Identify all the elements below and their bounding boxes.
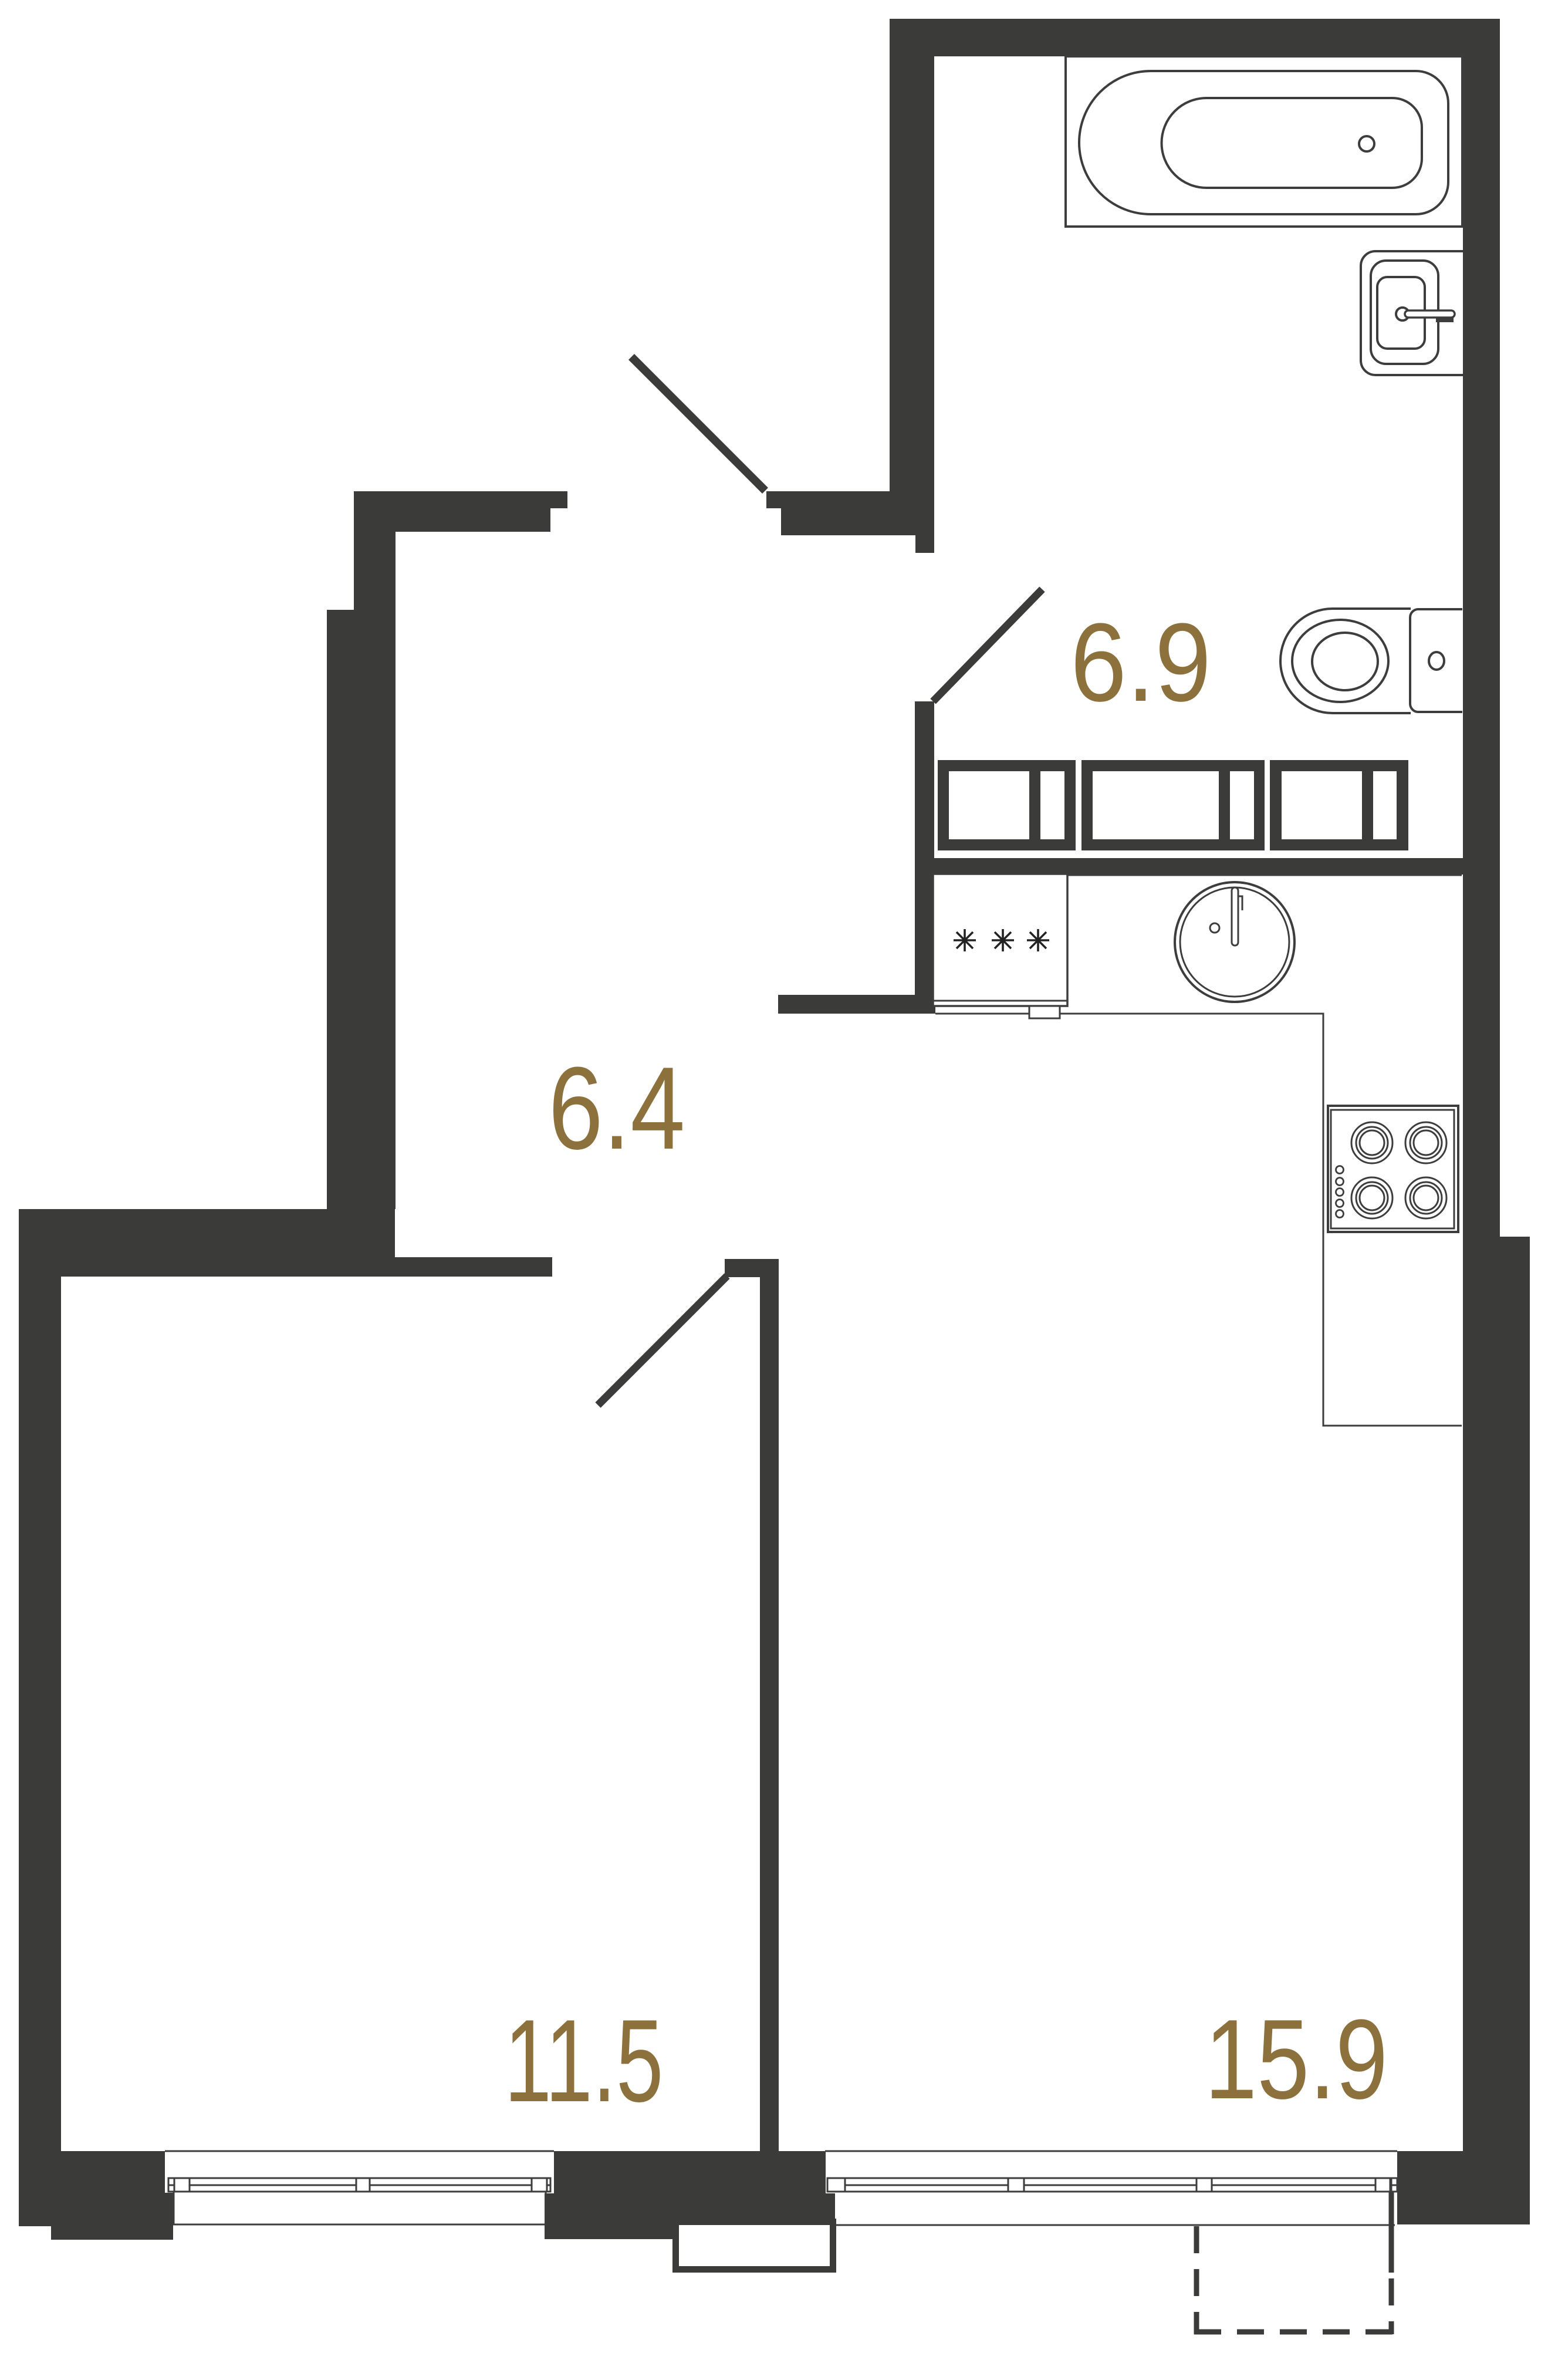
svg-text:15.9: 15.9 [1205, 1996, 1388, 2122]
svg-text:6.9: 6.9 [1070, 600, 1211, 725]
svg-text:6.4: 6.4 [549, 1043, 685, 1174]
svg-text:11.5: 11.5 [505, 1996, 664, 2126]
